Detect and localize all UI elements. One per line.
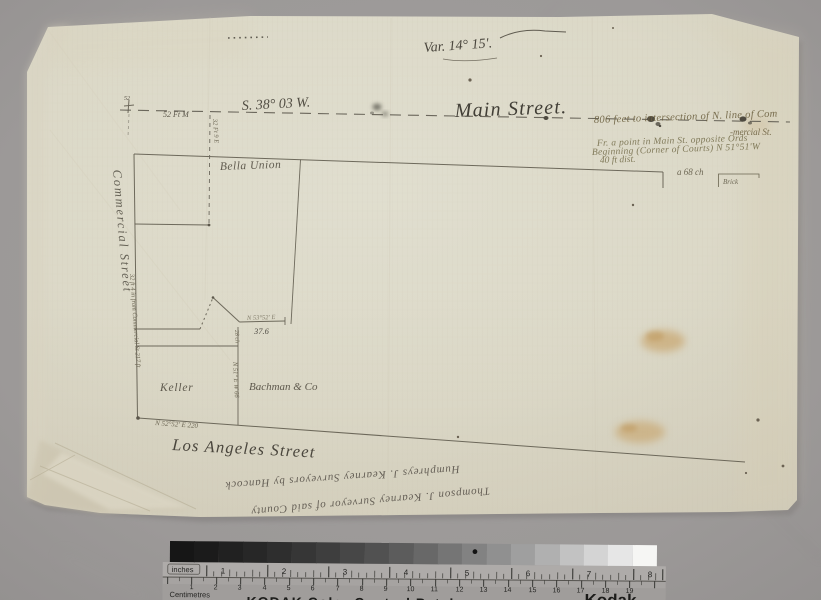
svg-text:1: 1 bbox=[221, 566, 226, 575]
svg-text:4: 4 bbox=[404, 568, 409, 577]
svg-text:Kodak: Kodak bbox=[584, 591, 637, 600]
svg-text:15: 15 bbox=[529, 587, 537, 594]
svg-text:inches: inches bbox=[172, 565, 194, 574]
svg-text:2: 2 bbox=[282, 567, 287, 576]
svg-text:4: 4 bbox=[263, 585, 267, 592]
svg-text:52: 52 bbox=[124, 96, 130, 102]
svg-text:13: 13 bbox=[480, 587, 488, 594]
svg-text:28 ch: 28 ch bbox=[233, 330, 240, 343]
svg-text:6: 6 bbox=[526, 569, 531, 578]
svg-text:9: 9 bbox=[384, 586, 388, 593]
svg-text:52 Ft M: 52 Ft M bbox=[163, 110, 190, 119]
svg-text:Main Street.: Main Street. bbox=[453, 96, 567, 122]
svg-text:Centimetres: Centimetres bbox=[170, 590, 211, 599]
svg-text:6: 6 bbox=[311, 585, 315, 592]
svg-text:N 53°52' E: N 53°52' E bbox=[246, 314, 276, 322]
svg-text:Keller: Keller bbox=[159, 382, 194, 394]
svg-text:17: 17 bbox=[577, 588, 585, 595]
svg-text:3: 3 bbox=[343, 568, 348, 577]
svg-text:a 68 ch: a 68 ch bbox=[677, 167, 704, 177]
svg-text:5: 5 bbox=[465, 569, 470, 578]
svg-text:10: 10 bbox=[407, 586, 415, 593]
svg-text:7: 7 bbox=[587, 570, 592, 579]
svg-text:Bella Union: Bella Union bbox=[220, 159, 282, 173]
svg-text:8: 8 bbox=[648, 570, 653, 579]
svg-text:8: 8 bbox=[360, 586, 364, 593]
svg-text:11: 11 bbox=[431, 586, 438, 593]
svg-text:Brick: Brick bbox=[723, 178, 739, 186]
svg-text:2: 2 bbox=[214, 584, 218, 591]
svg-text:7: 7 bbox=[336, 585, 340, 592]
svg-text:5: 5 bbox=[287, 585, 291, 592]
svg-text:Bachman & Co: Bachman & Co bbox=[249, 381, 318, 393]
svg-text:KODAK Color Control Patches: KODAK Color Control Patches bbox=[246, 594, 476, 600]
svg-text:37.6: 37.6 bbox=[253, 326, 270, 336]
svg-text:16: 16 bbox=[553, 587, 561, 594]
svg-text:14: 14 bbox=[504, 587, 512, 594]
svg-text:3: 3 bbox=[238, 585, 242, 592]
svg-text:12: 12 bbox=[456, 586, 464, 593]
svg-text:40 ft dist.: 40 ft dist. bbox=[600, 154, 636, 166]
